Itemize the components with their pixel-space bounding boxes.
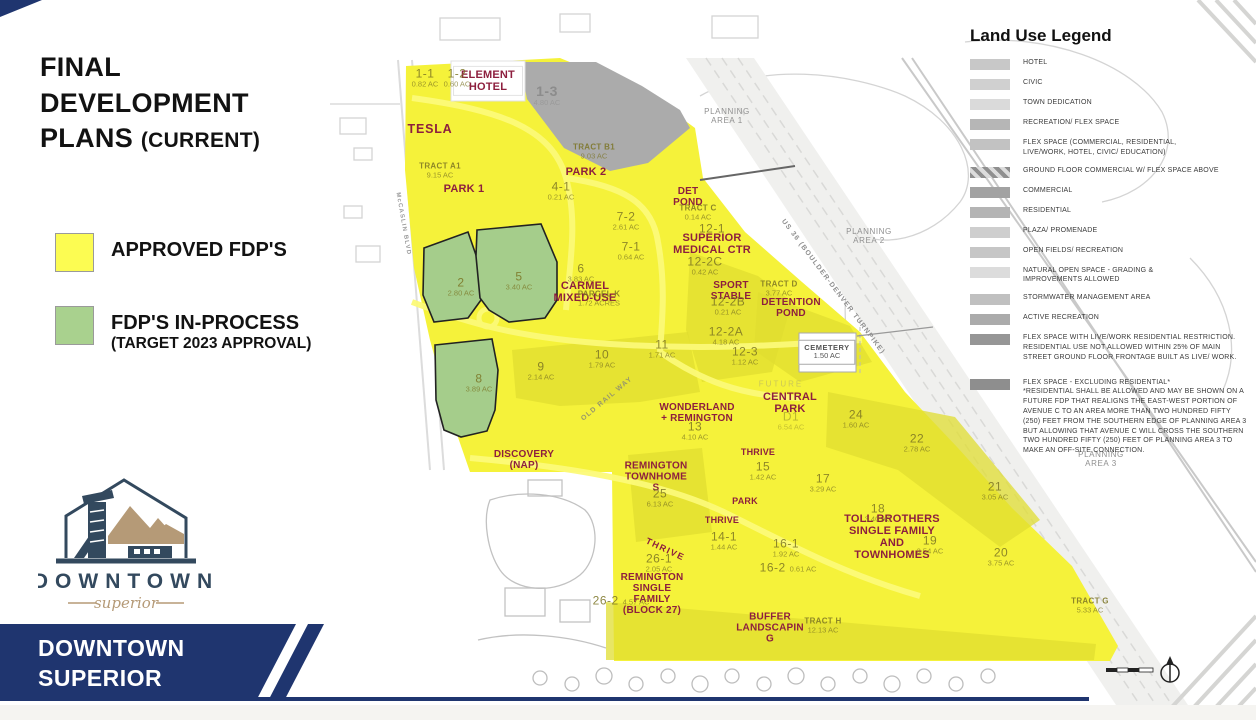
parcel-tract-a1: TRACT A19.15 AC	[419, 162, 461, 179]
page-title: FINAL DEVELOPMENT PLANS (CURRENT)	[40, 50, 260, 157]
scale-bar	[1106, 668, 1153, 672]
legend-swatch-hatched	[970, 167, 1010, 178]
legend-item-residential: RESIDENTIAL	[970, 206, 1256, 218]
legend-swatch	[970, 379, 1010, 390]
parcel-25: 256.13 AC	[647, 487, 674, 508]
parcel-18: 183.40 AC	[865, 502, 892, 523]
legend-swatch	[970, 99, 1010, 110]
logo-script: superior	[94, 594, 159, 612]
parcel-12-3: 12-31.12 AC	[732, 345, 759, 366]
land-use-legend-title: Land Use Legend	[970, 26, 1256, 46]
slide: ELEMENT HOTEL TESLA PARK 1 PARK 2 DET PO…	[0, 0, 1256, 720]
parcel-20: 203.75 AC	[988, 546, 1015, 567]
downtown-superior-banner: DOWNTOWN SUPERIOR	[0, 624, 340, 701]
legend-item-open-fields: OPEN FIELDS/ RECREATION	[970, 246, 1256, 258]
parcel-9: 92.14 AC	[528, 360, 555, 381]
parcel-16-2: 16-20.61 AC	[760, 561, 817, 574]
parcel-11: 111.71 AC	[649, 338, 676, 359]
legend-item-flex-live-work: FLEX SPACE WITH LIVE/WORK RESIDENTIAL RE…	[970, 333, 1256, 362]
parcel-12-2b: 12-2B0.21 AC	[711, 295, 746, 316]
parcel-17: 173.29 AC	[810, 472, 837, 493]
parcel-tract-d: TRACT D3.77 AC	[760, 280, 797, 297]
parcel-26-1: 26-12.05 AC	[646, 552, 673, 573]
parcel-k: PARCEL K1.72 ACRES	[578, 290, 621, 307]
legend-item-commercial: COMMERCIAL	[970, 186, 1256, 198]
downtown-superior-logo: DOWNTOWN superior	[38, 466, 248, 626]
bottom-strip	[0, 705, 1256, 720]
legend-item-flex-space: FLEX SPACE (COMMERCIAL, RESIDENTIAL, LIV…	[970, 138, 1256, 158]
legend-swatch	[970, 267, 1010, 278]
legend-swatch	[970, 119, 1010, 130]
legend-approved-fdps: APPROVED FDP'S	[55, 233, 287, 272]
legend-item-flex-excluding-residential: FLEX SPACE - EXCLUDING RESIDENTIAL* *RES…	[970, 378, 1256, 456]
legend-item-hotel: HOTEL	[970, 58, 1256, 70]
banner-line-2: SUPERIOR	[38, 664, 185, 694]
inprocess-fdp-swatch	[55, 306, 94, 345]
legend-item-stormwater: STORMWATER MANAGEMENT AREA	[970, 293, 1256, 305]
logo-wordmark: DOWNTOWN	[38, 570, 219, 593]
parcel-12-1: 12-1	[699, 222, 725, 235]
parcel-tract-c: TRACT C0.14 AC	[679, 204, 716, 221]
parcel-12-2c: 12-2C0.42 AC	[687, 255, 722, 276]
parcel-d1: D16.54 AC	[778, 410, 805, 431]
banner-line-1: DOWNTOWN	[38, 634, 185, 664]
parcel-tract-b1: TRACT B19.03 AC	[573, 143, 615, 160]
legend-swatch	[970, 227, 1010, 238]
title-line-3: PLANS (CURRENT)	[40, 121, 260, 157]
parcel-7-2: 7-22.61 AC	[613, 210, 640, 231]
legend-inprocess-fdps: FDP'S IN-PROCESS (TARGET 2023 APPROVAL)	[55, 306, 311, 354]
label-tesla: TESLA	[408, 123, 453, 137]
parcel-16-1: 16-11.92 AC	[773, 537, 800, 558]
approved-fdp-label: APPROVED FDP'S	[111, 233, 287, 262]
parcel-1-2: 1-20.60 AC	[444, 67, 471, 88]
land-use-legend: Land Use Legend HOTEL CIVIC TOWN DEDICAT…	[970, 26, 1256, 464]
legend-swatch	[970, 59, 1010, 70]
legend-swatch	[970, 187, 1010, 198]
inprocess-fdp-label: FDP'S IN-PROCESS (TARGET 2023 APPROVAL)	[111, 306, 311, 354]
parcel-5: 53.40 AC	[506, 270, 533, 291]
approved-fdp-swatch	[55, 233, 94, 272]
parcel-1-3: 1-34.80 AC	[534, 84, 561, 108]
legend-item-natural-open-space: NATURAL OPEN SPACE - GRADING & IMPROVEME…	[970, 266, 1256, 286]
legend-item-ground-floor-commercial: GROUND FLOOR COMMERCIAL W/ FLEX SPACE AB…	[970, 166, 1256, 178]
parcel-1-1: 1-10.82 AC	[412, 67, 439, 88]
parcel-15: 151.42 AC	[750, 460, 777, 481]
legend-swatch	[970, 139, 1010, 150]
label-planning-area-2: PLANNING AREA 2	[846, 227, 892, 245]
label-future: FUTURE	[759, 380, 803, 389]
parcel-19: 193.54 AC	[917, 534, 944, 555]
parcel-13: 134.10 AC	[682, 420, 709, 441]
parcel-cemetery: CEMETERY1.50 AC	[798, 340, 855, 365]
label-thrive-14: THRIVE	[705, 516, 739, 526]
label-buffer-landscaping: BUFFER LANDSCAPIN G	[736, 612, 804, 645]
label-detention-pond: DETENTION POND	[761, 297, 821, 319]
parcel-21: 213.05 AC	[982, 480, 1009, 501]
banner-text: DOWNTOWN SUPERIOR	[38, 634, 185, 694]
parcel-tract-g: TRACT G5.33 AC	[1071, 597, 1109, 614]
legend-swatch	[970, 207, 1010, 218]
legend-item-active-recreation: ACTIVE RECREATION	[970, 313, 1256, 325]
parcel-10: 101.79 AC	[589, 348, 616, 369]
title-line-2: DEVELOPMENT	[40, 86, 260, 122]
campus-buildings	[478, 480, 606, 648]
legend-swatch	[970, 247, 1010, 258]
label-discovery-nap: DISCOVERY (NAP)	[494, 449, 554, 471]
legend-swatch	[970, 79, 1010, 90]
parcel-22: 222.78 AC	[904, 432, 931, 453]
legend-swatch	[970, 314, 1010, 325]
parcel-6: 63.83 AC	[568, 262, 595, 283]
parcel-26-2: 26-24.57 AC	[593, 594, 650, 607]
label-thrive-15: THRIVE	[741, 448, 775, 458]
title-line-1: FINAL	[40, 50, 260, 86]
label-park-small: PARK	[732, 497, 758, 507]
parcel-4-1: 4-10.21 AC	[548, 180, 575, 201]
legend-swatch	[970, 294, 1010, 305]
tree-row	[533, 668, 995, 692]
title-suffix: (CURRENT)	[141, 129, 260, 152]
parcel-2: 22.80 AC	[448, 276, 475, 297]
parcel-7-1: 7-10.64 AC	[618, 240, 645, 261]
logo-mountains	[108, 506, 184, 544]
parcel-24: 241.60 AC	[843, 408, 870, 429]
parcel-8: 83.89 AC	[466, 372, 493, 393]
parcel-tract-h: TRACT H12.13 AC	[804, 617, 841, 634]
legend-item-recreation-flex: RECREATION/ FLEX SPACE	[970, 118, 1256, 130]
parcel-14-1: 14-11.44 AC	[711, 530, 738, 551]
legend-item-town-dedication: TOWN DEDICATION	[970, 98, 1256, 110]
legend-item-plaza-promenade: PLAZA/ PROMENADE	[970, 226, 1256, 238]
inprocess-fdp-sublabel: (TARGET 2023 APPROVAL)	[111, 335, 311, 354]
label-park-2: PARK 2	[566, 166, 607, 178]
legend-item-civic: CIVIC	[970, 78, 1256, 90]
label-planning-area-1: PLANNING AREA 1	[704, 107, 750, 125]
label-park-1: PARK 1	[444, 183, 485, 195]
legend-swatch	[970, 334, 1010, 345]
